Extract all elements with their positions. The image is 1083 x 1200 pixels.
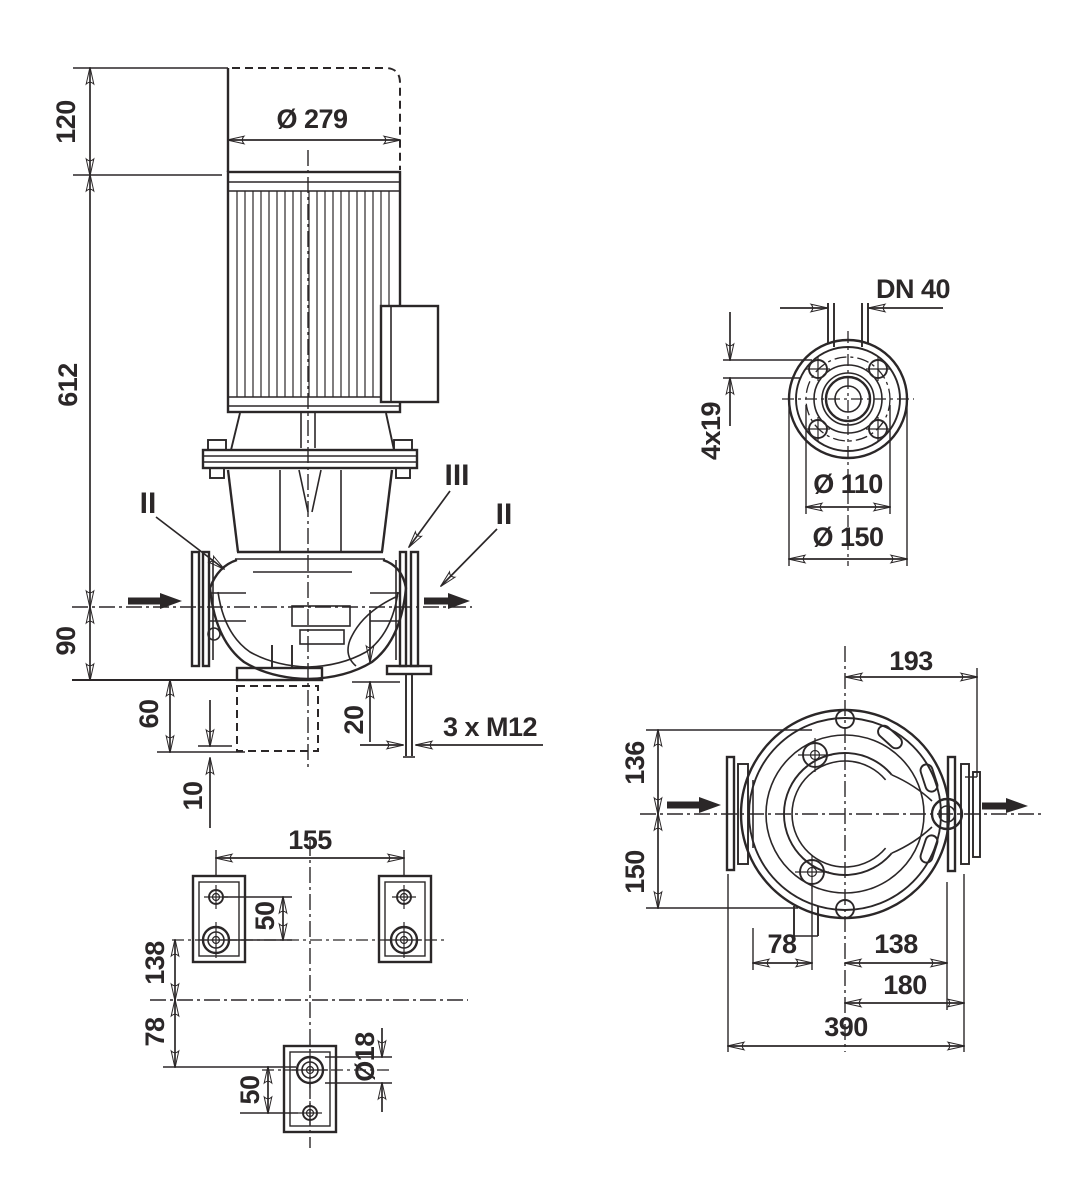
motor-fins: [237, 191, 389, 397]
volute: [192, 552, 418, 679]
flange-view-dimensions: DN 40 4x19 Ø 110 Ø 150: [696, 274, 950, 566]
gauge-label-top: III: [444, 459, 469, 492]
dim-height: 612: [53, 363, 83, 407]
support-foot-plate: [387, 666, 431, 674]
foot-plan-view: 155 50 138 78 50 Ø18: [140, 825, 468, 1148]
gauge-label-left: II: [140, 487, 157, 520]
dim-center-to-edge: 193: [889, 646, 933, 676]
anchor-note: 3 x M12: [443, 712, 537, 742]
foot-pad-upper-left: [193, 876, 245, 962]
dim-outer-diameter: Ø 150: [812, 522, 883, 552]
dim-nominal-diameter: DN 40: [876, 274, 950, 304]
dim-hole-offset-lower: 50: [235, 1075, 265, 1104]
dim-motor-diameter: Ø 279: [276, 104, 348, 134]
top-view-volute: [727, 710, 980, 936]
dim-upper: 136: [620, 741, 650, 785]
dimensional-drawing: Ø 279 120 612 90 60 10 20 3 x M12 II III…: [0, 0, 1083, 1200]
dim-lower: 150: [620, 850, 650, 894]
top-inlet-arrow: [667, 797, 721, 813]
dim-axis-to-foot: 78: [140, 1017, 170, 1047]
motor-envelope: [73, 68, 400, 172]
dim-foot-offset: 78: [767, 929, 797, 959]
kidney-slots: [876, 723, 939, 864]
lantern: [231, 413, 394, 450]
dim-port-to-port: 390: [824, 1012, 868, 1042]
dim-row-to-axis: 138: [140, 941, 170, 985]
dim-center-flange: 180: [883, 970, 927, 1000]
front-view: Ø 279 120 612 90 60 10 20 3 x M12 II III…: [51, 68, 543, 828]
motor-body: [228, 172, 438, 412]
gauge-top-leader: [409, 491, 450, 547]
flange-view: DN 40 4x19 Ø 110 Ø 150: [696, 274, 950, 566]
dim-hole-spacing: 155: [288, 825, 332, 855]
drawing-canvas: Ø 279 120 612 90 60 10 20 3 x M12 II III…: [0, 0, 1083, 1200]
gauge-label-right: II: [496, 498, 513, 531]
dim-port-axis: 90: [51, 626, 81, 655]
dim-hole-diameter: Ø18: [350, 1032, 380, 1082]
dim-center-foot: 138: [874, 929, 918, 959]
dim-block-height: 60: [134, 699, 164, 728]
dim-grout: 10: [178, 781, 208, 810]
dim-hole-offset-upper: 50: [250, 901, 280, 930]
pump-casing: [228, 470, 392, 644]
pump-foot: [72, 666, 431, 757]
adapter-flange: [203, 440, 417, 512]
foundation-block: [237, 686, 318, 751]
top-view: 193 136 150 78 138 180 390: [620, 646, 1042, 1052]
dim-bolt-circle: Ø 110: [813, 469, 883, 499]
top-outlet-arrow: [982, 798, 1028, 813]
dim-bolt-holes: 4x19: [696, 401, 726, 460]
gauge-left-leader: [156, 517, 224, 569]
gauge-right-leader: [441, 529, 497, 586]
foot-pad-upper-right: [379, 876, 431, 962]
dim-flange-base: 20: [339, 705, 369, 734]
terminal-box: [381, 306, 438, 402]
dim-overhead: 120: [51, 100, 81, 144]
